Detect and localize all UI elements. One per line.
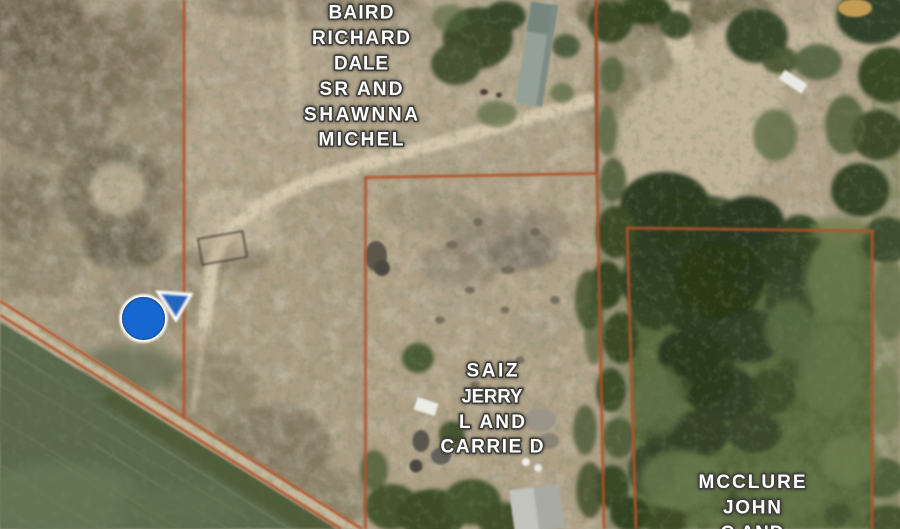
svg-text:SHAWNNA: SHAWNNA [304,105,418,126]
svg-text:JOHN: JOHN [723,498,781,519]
svg-text:L AND: L AND [459,412,525,433]
svg-text:MICHEL: MICHEL [319,130,404,151]
svg-text:SAIZ: SAIZ [467,361,518,382]
svg-text:DALE: DALE [334,54,388,75]
svg-text:JERRY: JERRY [462,387,523,408]
svg-text:BAIRD: BAIRD [329,3,394,24]
svg-text:CARRIE D: CARRIE D [441,437,544,458]
svg-text:C AND: C AND [721,523,784,529]
svg-text:RICHARD: RICHARD [312,28,410,49]
svg-text:SR AND: SR AND [320,79,403,100]
